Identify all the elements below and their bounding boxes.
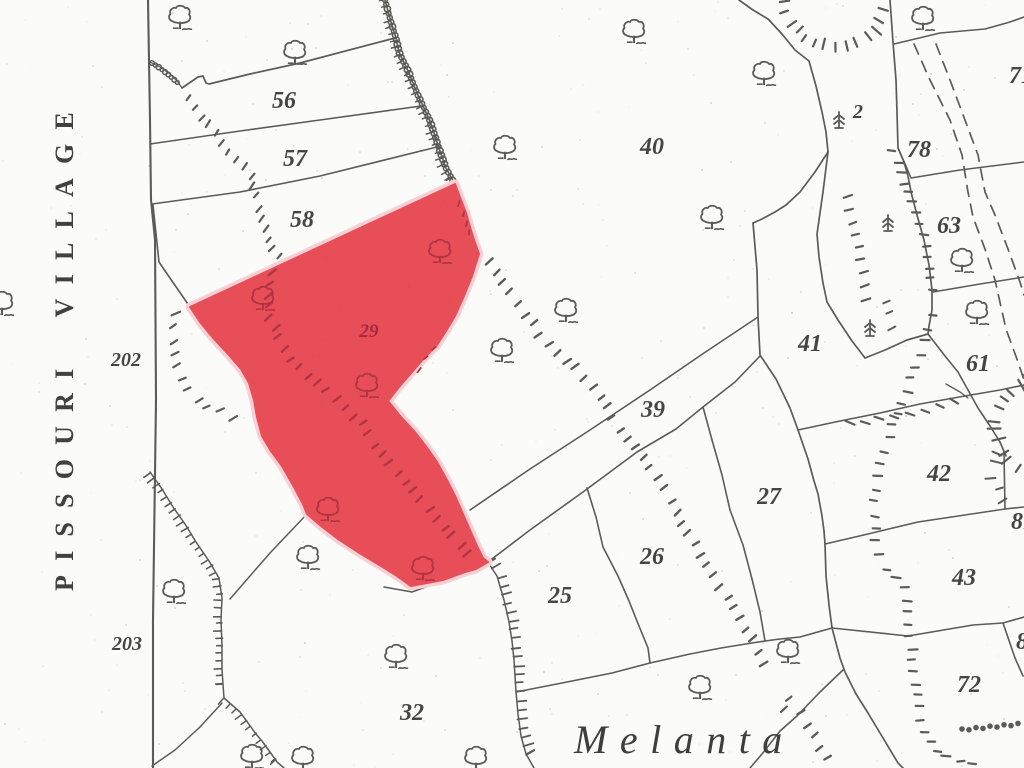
svg-text:78: 78 [907,137,931,163]
svg-text:81: 81 [1011,509,1024,535]
svg-text:PISSOURI VILLAGE: PISSOURI VILLAGE [50,98,79,591]
svg-text:43: 43 [951,565,976,591]
svg-text:2: 2 [852,101,863,123]
svg-text:61: 61 [966,351,990,377]
svg-text:63: 63 [937,213,961,239]
svg-text:25: 25 [547,583,572,609]
svg-text:26: 26 [639,544,664,570]
svg-text:42: 42 [926,461,951,487]
svg-text:56: 56 [272,88,296,114]
svg-text:32: 32 [399,700,424,726]
svg-text:203: 203 [111,633,142,655]
svg-text:40: 40 [639,134,664,160]
svg-text:Melanta: Melanta [573,717,795,762]
svg-text:27: 27 [756,484,782,510]
svg-text:29: 29 [359,321,380,342]
svg-text:71: 71 [1009,63,1024,89]
svg-text:57: 57 [283,146,308,172]
svg-text:202: 202 [110,349,141,371]
svg-text:72: 72 [957,672,981,698]
svg-text:58: 58 [290,207,314,233]
svg-text:8: 8 [1016,629,1024,655]
svg-text:39: 39 [640,397,665,423]
svg-text:41: 41 [797,331,822,357]
